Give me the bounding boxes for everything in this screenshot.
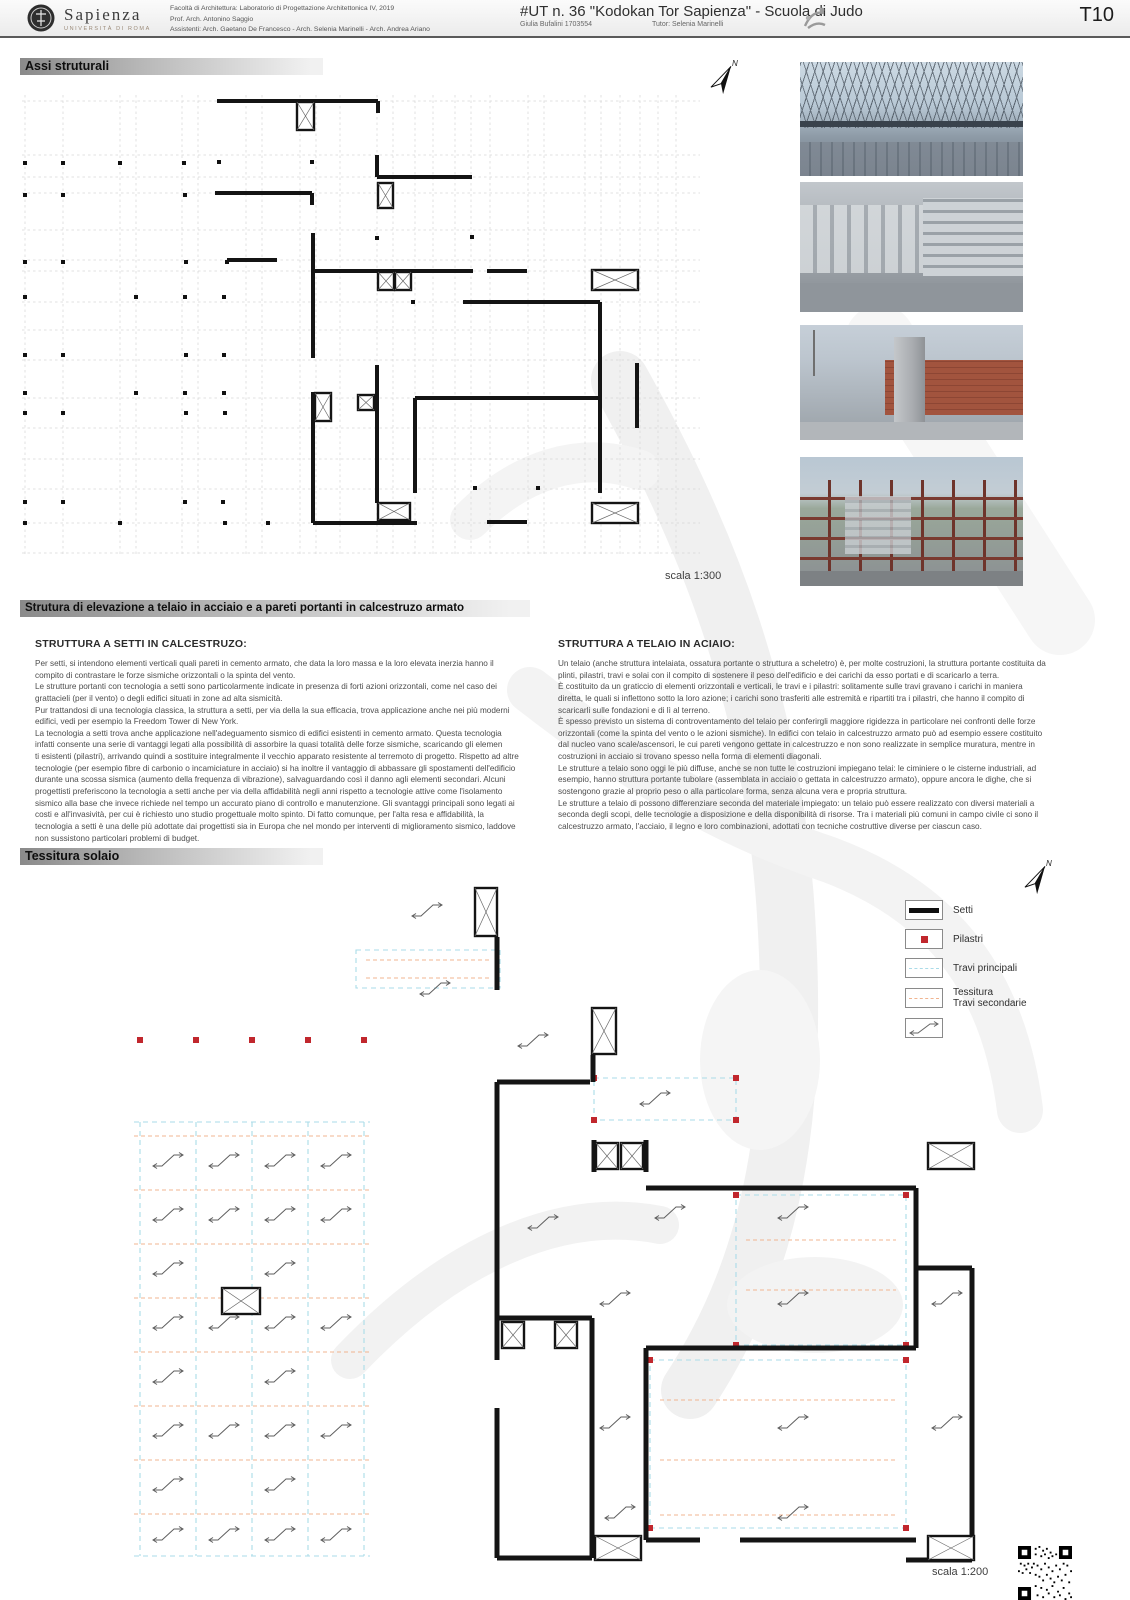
- course-line-2: Prof. Arch. Antonino Saggio: [170, 15, 430, 26]
- presentation-board: Sapienza UNIVERSITÀ DI ROMA Facoltà di A…: [0, 0, 1130, 1600]
- body-telaio-acciaio: Un telaio (anche struttura intelaiata, o…: [558, 658, 1047, 833]
- section-title-struttura-elevazione: Strutura di elevazione a telaio in accia…: [20, 600, 530, 617]
- section-title-assi-strutturali: Assi struturali: [20, 58, 323, 75]
- section-title-tessitura-solaio: Tessitura solaio: [20, 848, 323, 865]
- header-bar: Sapienza UNIVERSITÀ DI ROMA Facoltà di A…: [0, 0, 1130, 38]
- span-direction-arrows: [153, 903, 962, 1543]
- course-line-3: Assistenti: Arch. Gaetano De Francesco -…: [170, 25, 430, 36]
- course-line-1: Facoltà di Architettura: Laboratorio di …: [170, 4, 430, 15]
- judo-pictogram-icon: [800, 4, 830, 32]
- qr-code: [1018, 1546, 1072, 1600]
- photo-weathering-steel-frame: [800, 457, 1023, 586]
- structural-axes-plan: [20, 85, 760, 575]
- student-name: Giulia Bufalini 1703554: [520, 21, 592, 28]
- university-subtitle: UNIVERSITÀ DI ROMA: [64, 26, 151, 32]
- svg-text:N: N: [1046, 859, 1052, 868]
- pilaster-dots: [23, 160, 540, 525]
- floor-framing-plan: [110, 870, 1000, 1570]
- stair-core-boxes: [222, 888, 974, 1560]
- photo-concrete-walls: [800, 182, 1023, 312]
- svg-text:N: N: [732, 59, 738, 68]
- photo-steel-spaceframe: [800, 62, 1023, 176]
- heading-setti-calcestruzzo: STRUTTURA A SETTI IN CALCESTRUZO:: [35, 638, 247, 650]
- photo-brick-core-crane: [800, 325, 1023, 440]
- stair-core-boxes: [297, 102, 638, 523]
- north-arrow-icon: N: [1016, 856, 1060, 900]
- pilastri-dots: [137, 1037, 909, 1531]
- university-name: Sapienza: [64, 5, 151, 25]
- course-info: Facoltà di Architettura: Laboratorio di …: [170, 4, 430, 36]
- university-logo: Sapienza UNIVERSITÀ DI ROMA: [26, 3, 151, 33]
- heading-telaio-acciaio: STRUTTURA A TELAIO IN ACIAIO:: [558, 638, 735, 650]
- sapienza-logo-icon: [26, 3, 56, 33]
- tutor-name: Tutor: Selenia Marinelli: [652, 21, 723, 28]
- scale-label-assi: scala 1:300: [665, 570, 721, 582]
- scale-label-tessitura: scala 1:200: [932, 1566, 988, 1578]
- body-setti-calcestruzzo: Per setti, si intendono elementi vertica…: [35, 658, 522, 844]
- sheet-number: T10: [1080, 4, 1114, 27]
